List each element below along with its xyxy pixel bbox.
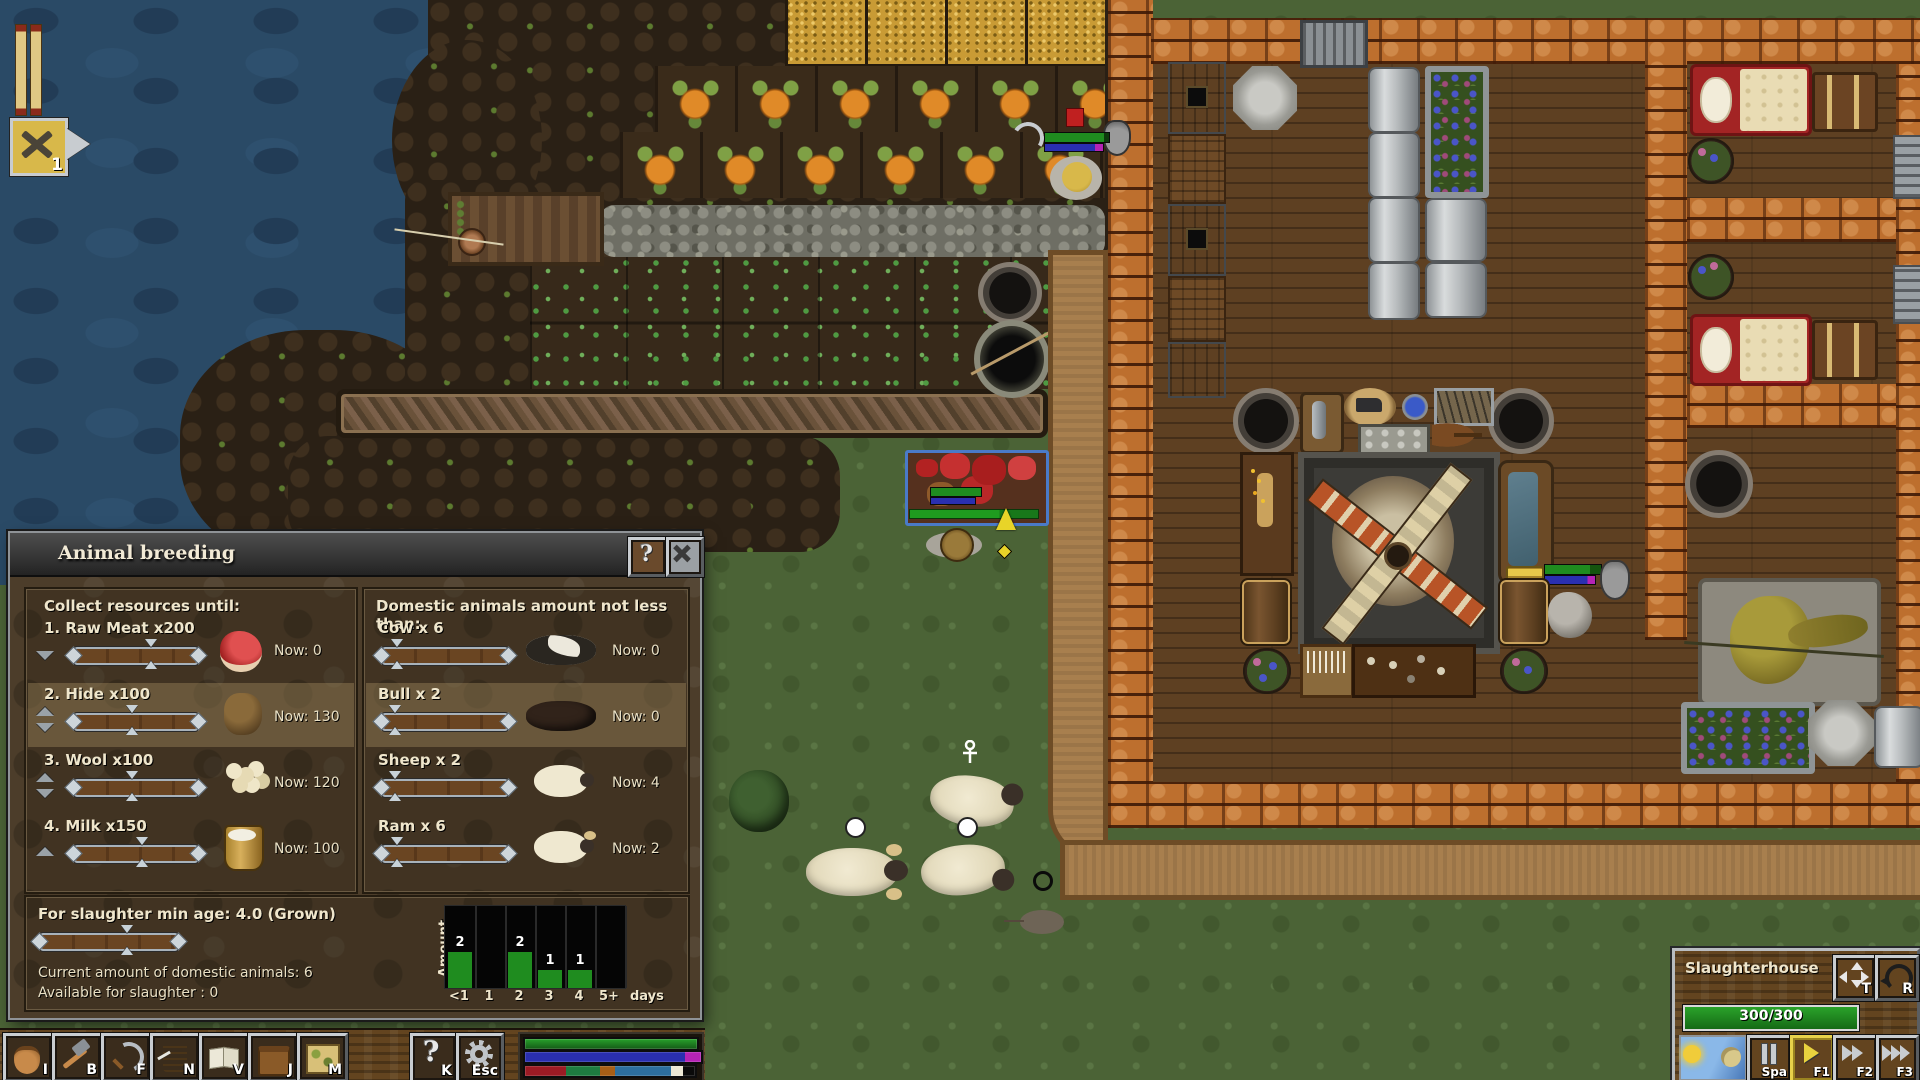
- work-table[interactable]: [1352, 644, 1476, 698]
- sheep-icon: [534, 765, 588, 797]
- chart-tick-label: 5+: [594, 989, 624, 1005]
- shortcut-label: B: [86, 1062, 97, 1078]
- sheep-slider[interactable]: [382, 777, 508, 797]
- gravel-path: [600, 205, 1105, 257]
- inventory-button[interactable]: I: [3, 1033, 54, 1080]
- go-up-cursor: [996, 508, 1016, 530]
- hide-slider[interactable]: [74, 711, 198, 731]
- building-hp-text: 300/300: [1685, 1008, 1857, 1024]
- anvil-station[interactable]: [1344, 388, 1396, 426]
- priority-down-arrow[interactable]: [36, 723, 54, 732]
- roof-hatch: [1186, 86, 1208, 108]
- chart-bar: [538, 970, 562, 988]
- age-chart-ticks: <112345+: [444, 989, 624, 1005]
- ladder[interactable]: [1893, 135, 1920, 199]
- resource-now: Now: 130: [274, 709, 340, 725]
- fastest-icon: [1900, 1045, 1910, 1061]
- animal-row-ram[interactable]: Ram x 6 Now: 2: [366, 815, 686, 879]
- animal-row-sheep[interactable]: Sheep x 2 Now: 4: [366, 749, 686, 813]
- flower-pot[interactable]: [1688, 138, 1734, 184]
- chart-bar: [568, 970, 592, 988]
- pause-indicator-bar: [15, 24, 27, 116]
- chart-bar: [448, 952, 472, 988]
- ram-icon: [534, 831, 588, 863]
- waypoint-diamond: [997, 544, 1013, 560]
- hide-icon: [224, 693, 262, 735]
- bed[interactable]: [1690, 64, 1812, 136]
- sheep[interactable]: [919, 841, 1008, 900]
- fishing-dock[interactable]: [448, 192, 604, 266]
- sun-icon: [1683, 1045, 1701, 1063]
- dialog-title-bar[interactable]: Animal breeding ?: [10, 533, 700, 577]
- priority-up-arrow[interactable]: [36, 847, 54, 856]
- bed-blanket: [1740, 69, 1807, 131]
- task-badge-arrow: [66, 128, 90, 160]
- storage-chest[interactable]: [1812, 72, 1878, 132]
- skills-button[interactable]: V: [199, 1033, 250, 1080]
- rotate-building-button[interactable]: R: [1875, 955, 1919, 1001]
- slider-track[interactable]: [40, 933, 178, 951]
- pause-speed-button[interactable]: Spa: [1747, 1035, 1793, 1080]
- bull-slider[interactable]: [382, 711, 508, 731]
- shortcut-label: M: [328, 1062, 342, 1078]
- farmer-health-bar: [1044, 132, 1110, 143]
- metal-tank[interactable]: [1368, 67, 1420, 133]
- farmer-head: [1062, 162, 1092, 192]
- shortcut-label: F2: [1856, 1065, 1873, 1079]
- shortcut-label: R: [1902, 981, 1913, 997]
- pause-icon: [1761, 1043, 1768, 1065]
- dirt-road-vertical: [1048, 250, 1108, 860]
- wicker-fence[interactable]: [336, 389, 1048, 438]
- chart-tick-label: 1: [474, 989, 504, 1005]
- raw-meat-slider[interactable]: [74, 645, 198, 665]
- chart-column: 2: [445, 906, 477, 988]
- workbench[interactable]: [1240, 452, 1294, 576]
- priority-down-arrow[interactable]: [36, 651, 54, 660]
- resource-label: 4. Milk x150: [44, 817, 147, 835]
- resource-now: Now: 100: [274, 841, 340, 857]
- windmill[interactable]: [1298, 452, 1500, 654]
- barrel[interactable]: [1498, 578, 1550, 646]
- build-button[interactable]: B: [52, 1033, 103, 1080]
- animal-label: Ram x 6: [378, 817, 446, 835]
- building-wall-bottom[interactable]: [1108, 782, 1920, 828]
- hauler-basket: [940, 528, 974, 562]
- bush[interactable]: [729, 770, 789, 832]
- wheat-field[interactable]: [785, 0, 1105, 67]
- animal-now: Now: 2: [612, 841, 660, 857]
- animal-now: Now: 0: [612, 643, 660, 659]
- ladder[interactable]: [1893, 265, 1920, 324]
- population-bar-fill: [523, 1064, 697, 1078]
- wool-slider[interactable]: [74, 777, 198, 797]
- resource-label: 2. Hide x100: [44, 685, 150, 703]
- age-chart-plot: 2211: [444, 905, 626, 989]
- brazier-right[interactable]: [1488, 388, 1554, 454]
- slaughter-panel: For slaughter min age: 4.0 (Grown) Curre…: [24, 895, 690, 1012]
- metal-tank[interactable]: [1425, 198, 1487, 262]
- trough-water: [1508, 472, 1538, 566]
- pouch-icon: [14, 1046, 40, 1074]
- move-icon: [1851, 962, 1863, 970]
- settings-button[interactable]: Esc: [456, 1033, 504, 1080]
- storage-chest[interactable]: [1812, 320, 1878, 380]
- rotate-icon-head: [1880, 976, 1889, 986]
- metal-tank[interactable]: [1368, 262, 1420, 320]
- sheep-icon-head: [580, 773, 594, 787]
- rat[interactable]: [1020, 910, 1064, 934]
- ram-horn: [886, 888, 902, 900]
- brazier-left[interactable]: [1233, 388, 1299, 454]
- dialog-title: Animal breeding: [58, 542, 235, 564]
- grindstone[interactable]: [1300, 392, 1344, 454]
- priority-up-arrow[interactable]: [36, 707, 54, 716]
- slaughter-age-slider[interactable]: [40, 931, 178, 951]
- question-icon: ?: [423, 1035, 439, 1068]
- wool-icon: [226, 763, 242, 779]
- chart-column: [595, 906, 627, 988]
- hammer-head: [71, 1038, 90, 1057]
- resource-now: Now: 120: [274, 775, 340, 791]
- stall-worker-bar2: [930, 497, 976, 505]
- animal-now: Now: 4: [612, 775, 660, 791]
- bed-pillow: [1702, 79, 1730, 121]
- lute-neck: [1454, 433, 1482, 437]
- flowerbed-tall[interactable]: [1425, 66, 1489, 198]
- metal-gate-bridge[interactable]: [1300, 20, 1368, 68]
- chart-tick-label: 2: [504, 989, 534, 1005]
- bedroom-divider-wall-1[interactable]: [1687, 198, 1920, 242]
- task-alert-badge[interactable]: 1: [10, 118, 68, 176]
- shortcut-label: F1: [1813, 1065, 1830, 1079]
- resource-label: 3. Wool x100: [44, 751, 153, 769]
- resource-row-hide[interactable]: 2. Hide x100 Now: 130: [28, 683, 354, 747]
- slaughterhouse-panel: Slaughterhouse T R 300/300 Spa: [1672, 948, 1920, 1080]
- sickle-tool-icon: [1009, 119, 1047, 157]
- close-button[interactable]: [666, 537, 704, 577]
- speed2-button[interactable]: F2: [1833, 1035, 1879, 1080]
- fire-basin[interactable]: [1685, 450, 1753, 518]
- shed-roof-3[interactable]: [1168, 342, 1226, 398]
- chart-column: [475, 906, 507, 988]
- chart-bar: [508, 952, 532, 988]
- wood-crate-2[interactable]: [1168, 276, 1226, 342]
- worker-status-bars: [1544, 564, 1602, 575]
- gear-core: [470, 1045, 488, 1063]
- priority-up-arrow[interactable]: [36, 773, 54, 782]
- help-button[interactable]: ?: [628, 537, 668, 577]
- speed1-button[interactable]: F1: [1790, 1035, 1836, 1080]
- dye-bowl[interactable]: [1402, 394, 1428, 420]
- sparks: [1251, 469, 1255, 473]
- farmer-unit[interactable]: [1008, 108, 1128, 208]
- raw-meat-pile: [916, 459, 938, 477]
- anvil: [1356, 398, 1382, 412]
- dirt-road-horizontal: [1060, 840, 1920, 900]
- chart-tick-label: <1: [444, 989, 474, 1005]
- pause-indicator-bar: [30, 24, 42, 116]
- animal-label: Bull x 2: [378, 685, 441, 703]
- shed-roof-1[interactable]: [1168, 62, 1226, 134]
- shortcut-label: K: [441, 1063, 452, 1079]
- resource-row-milk[interactable]: 4. Milk x150 Now: 100: [28, 815, 354, 879]
- shortcut-label: J: [288, 1062, 293, 1078]
- meat-stall[interactable]: [905, 450, 1049, 526]
- slaughter-min-age-label: For slaughter min age: 4.0 (Grown): [38, 905, 336, 923]
- tasks-button[interactable]: N: [150, 1033, 201, 1080]
- chart-bar-value: 1: [565, 953, 595, 968]
- milk-bucket-icon: [224, 825, 264, 871]
- alert-badge: [1066, 108, 1084, 127]
- flowerbed-wide[interactable]: [1681, 702, 1815, 774]
- move-building-button[interactable]: T: [1833, 955, 1877, 1001]
- stock-button[interactable]: J: [248, 1033, 299, 1080]
- animal-now: Now: 0: [612, 709, 660, 725]
- flower-pot[interactable]: [1500, 648, 1548, 694]
- fast-forward-icon: [1852, 1045, 1863, 1061]
- animal-row-bull[interactable]: Bull x 2 Now: 0: [366, 683, 686, 747]
- chart-tick-label: 3: [534, 989, 564, 1005]
- game-screen: 1 Animal breeding ? Collect resources un…: [0, 0, 1920, 1080]
- shed-roof-2[interactable]: [1168, 204, 1226, 276]
- question-icon: ?: [640, 541, 653, 567]
- cow-icon: [526, 635, 596, 665]
- current-animals-label: Current amount of domestic animals: 6: [38, 965, 313, 981]
- milk-surface: [228, 829, 256, 841]
- task-badge-count: 1: [51, 155, 63, 175]
- fire-pit[interactable]: [974, 320, 1050, 398]
- metal-tank[interactable]: [1368, 132, 1420, 198]
- ram-icon-head: [580, 839, 594, 853]
- daynight-indicator: [1679, 1035, 1747, 1080]
- resource-row-wool[interactable]: 3. Wool x100 Now: 120: [28, 749, 354, 813]
- rat-tail: [1004, 920, 1024, 922]
- stall-worker-bar: [930, 487, 982, 497]
- moon-icon: [1721, 1047, 1741, 1067]
- chart-tick-label: 4: [564, 989, 594, 1005]
- colony-status-bars: [518, 1032, 704, 1080]
- slider-track[interactable]: [382, 779, 508, 797]
- stone-pad[interactable]: [1808, 700, 1874, 766]
- shortcut-label: Esc: [472, 1063, 498, 1079]
- metal-tank[interactable]: [1425, 262, 1487, 318]
- animal-breeding-dialog: Animal breeding ? Collect resources unti…: [8, 531, 702, 1020]
- shortcut-label: Spa: [1762, 1065, 1787, 1079]
- available-slaughter-label: Available for slaughter : 0: [38, 985, 218, 1001]
- kingdom-help-button[interactable]: ? K: [410, 1033, 458, 1080]
- hauler-worker[interactable]: [926, 524, 982, 566]
- shortcut-label: F: [136, 1062, 146, 1078]
- animal-label: Sheep x 2: [378, 751, 461, 769]
- farming-button[interactable]: F: [101, 1033, 152, 1080]
- chest-icon: [258, 1046, 290, 1076]
- shortcut-label: T: [1861, 981, 1871, 997]
- charcoal-pit[interactable]: [978, 262, 1042, 324]
- chart-column: 2: [505, 906, 537, 988]
- bedroom-divider-wall-2[interactable]: [1687, 384, 1920, 428]
- resource-now: Now: 0: [274, 643, 322, 659]
- loom-threads: [1307, 651, 1347, 673]
- shortcut-label: F3: [1896, 1065, 1913, 1079]
- lute[interactable]: [1432, 420, 1482, 450]
- workbench-board: [1257, 473, 1273, 527]
- wood-crate-1[interactable]: [1168, 134, 1226, 204]
- roof-hatch: [1186, 228, 1208, 250]
- loom[interactable]: [1300, 644, 1354, 698]
- chart-bar-value: 2: [445, 935, 475, 950]
- grindstone-wheel: [1312, 401, 1326, 439]
- ram-slider[interactable]: [382, 843, 508, 863]
- barrel[interactable]: [1240, 578, 1292, 646]
- building-title: Slaughterhouse: [1685, 959, 1819, 977]
- animal-row-cow[interactable]: Cow x 6 Now: 0: [366, 617, 686, 681]
- water-bar-fill: [523, 1050, 703, 1064]
- resources-panel: Collect resources until: 1. Raw Meat x20…: [24, 587, 358, 894]
- ankh-cursor: [961, 740, 979, 764]
- shortcut-label: I: [43, 1062, 48, 1078]
- stall-progress-bar: [909, 509, 1039, 519]
- pause-icon: [1770, 1043, 1777, 1065]
- ram-horn: [886, 844, 902, 856]
- selection-dot: [845, 817, 866, 838]
- windmill-hub: [1384, 542, 1412, 570]
- slider-track[interactable]: [382, 713, 508, 731]
- chart-column: 1: [565, 906, 597, 988]
- shortcut-label: V: [233, 1062, 244, 1078]
- boulder[interactable]: [1548, 592, 1592, 638]
- bed-pillow: [1702, 329, 1730, 371]
- building-wall-top[interactable]: [1151, 18, 1920, 64]
- resources-header: Collect resources until:: [44, 597, 240, 615]
- selection-dot: [957, 817, 978, 838]
- speed3-button[interactable]: F3: [1876, 1035, 1919, 1080]
- bed[interactable]: [1690, 314, 1812, 386]
- metal-tank[interactable]: [1368, 197, 1420, 263]
- metal-tank[interactable]: [1874, 706, 1920, 768]
- age-chart-xsuffix: days: [630, 989, 670, 1004]
- animals-panel: Domestic animals amount not less than: C…: [362, 587, 690, 894]
- burrow-ring: [1033, 871, 1053, 891]
- flower-pot[interactable]: [1243, 648, 1291, 694]
- resource-label: 1. Raw Meat x200: [44, 619, 195, 637]
- shortcut-label: N: [183, 1062, 195, 1078]
- slider-track[interactable]: [74, 647, 198, 665]
- statue-pedestal[interactable]: [1698, 578, 1881, 706]
- flower-pot[interactable]: [1688, 254, 1734, 300]
- chart-column: 1: [535, 906, 567, 988]
- map-button[interactable]: M: [297, 1033, 348, 1080]
- milk-slider[interactable]: [74, 843, 198, 863]
- raw-meat-icon: [220, 631, 262, 672]
- farmer-mana-bar: [1044, 143, 1104, 152]
- building-hp-bar: 300/300: [1683, 1005, 1859, 1031]
- animal-label: Cow x 6: [378, 619, 444, 637]
- chart-bar-value: 2: [505, 935, 535, 950]
- ram-icon-horn: [584, 831, 596, 840]
- cow-slider[interactable]: [382, 645, 508, 665]
- chart-bar-value: 1: [535, 953, 565, 968]
- worker-mana-bar: [1544, 575, 1596, 585]
- food-bar-fill: [523, 1037, 699, 1051]
- bed-blanket: [1740, 319, 1807, 381]
- interior-wall-right-wing[interactable]: [1645, 60, 1687, 640]
- supply-sack[interactable]: [1600, 560, 1630, 600]
- fire-pit-pole: [970, 332, 1049, 376]
- ram[interactable]: [806, 848, 898, 896]
- move-icon: [1839, 971, 1847, 983]
- play-icon: [1804, 1043, 1819, 1063]
- table-items: [1367, 657, 1375, 665]
- priority-down-arrow[interactable]: [36, 789, 54, 798]
- bull-icon: [526, 701, 596, 731]
- resource-row-raw-meat[interactable]: 1. Raw Meat x200 Now: 0: [28, 617, 354, 681]
